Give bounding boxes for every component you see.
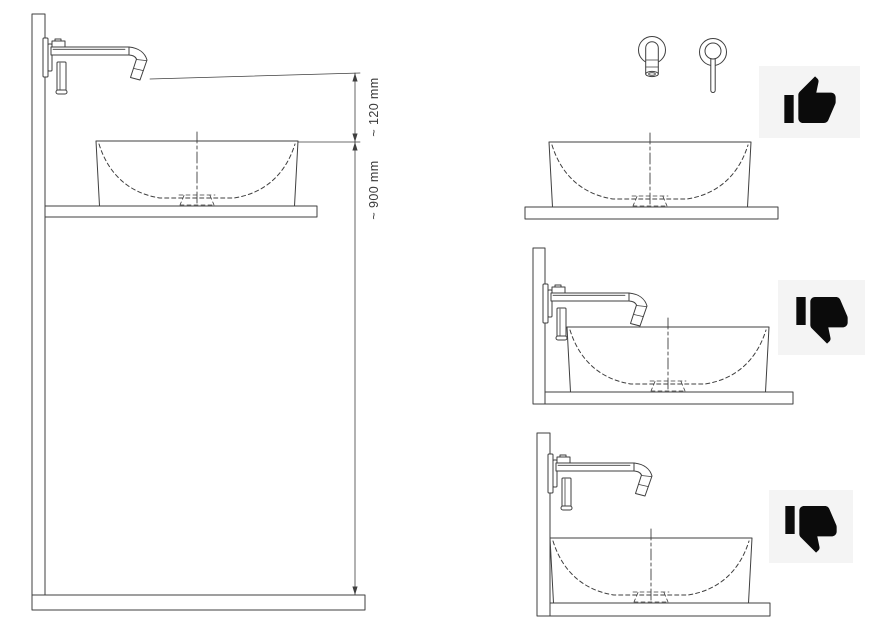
installation-diagram-page: ~ 120 mm ~ 900 mm — [0, 0, 888, 630]
wall-section — [32, 14, 45, 595]
wall-section — [533, 248, 545, 404]
countertop — [525, 207, 778, 219]
panel-basin-against-wall — [537, 433, 770, 616]
installation-diagram — [0, 0, 888, 630]
vessel-basin — [96, 132, 298, 206]
thumbs-down-icon — [783, 499, 839, 555]
dimension-label-counter-height: ~ 900 mm — [367, 160, 381, 219]
verdict-badge-correct — [759, 66, 860, 138]
thumbs-down-icon — [794, 290, 850, 346]
vessel-basin — [549, 133, 751, 207]
panel-faucet-too-low — [533, 248, 793, 404]
verdict-badge-against-wall — [769, 490, 853, 563]
vessel-basin — [567, 318, 769, 392]
countertop — [550, 603, 770, 616]
spout-front-view — [639, 37, 666, 77]
wall-mounted-faucet — [43, 38, 147, 94]
dimension-label-spout-height: ~ 120 mm — [367, 77, 381, 136]
thumbs-up-icon — [782, 74, 838, 130]
verdict-badge-too-low — [778, 280, 865, 355]
countertop — [45, 206, 317, 217]
mixer-handle-front-view — [700, 39, 727, 93]
wall-mounted-faucet — [548, 454, 652, 510]
floor-section — [32, 595, 365, 610]
main-dimension-diagram — [32, 14, 365, 610]
panel-correct-front-view — [525, 37, 778, 220]
countertop — [545, 392, 793, 404]
vessel-basin — [550, 529, 752, 603]
